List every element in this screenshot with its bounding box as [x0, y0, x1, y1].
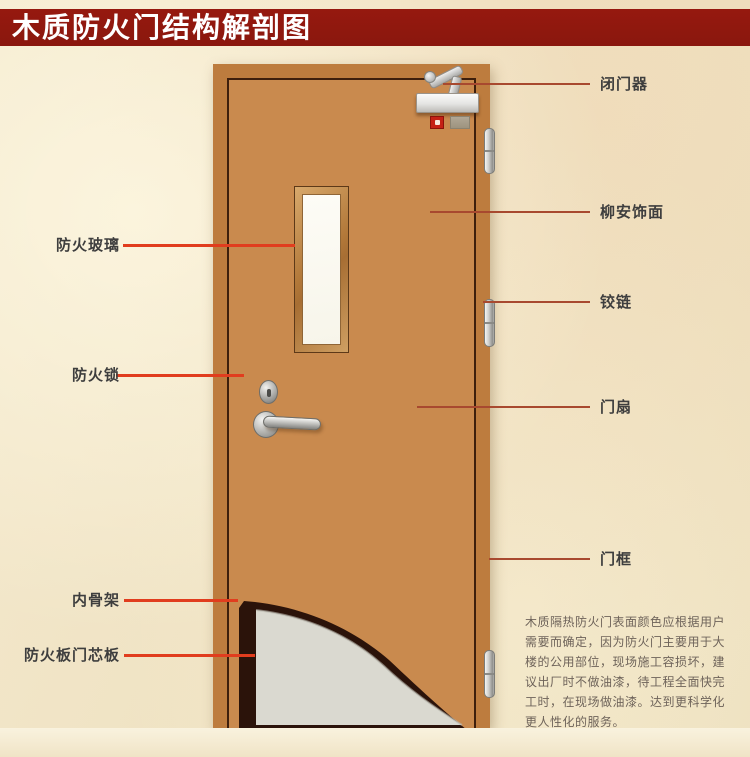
label-door-leaf: 门扇 [600, 398, 632, 416]
hinge-bottom [484, 650, 495, 698]
note-line: 需要而确定，因为防火门主要用于大 [525, 632, 721, 652]
leader-line [483, 301, 590, 303]
fire-rating-badge [430, 116, 444, 129]
door-closer-pivot [424, 71, 436, 83]
label-fire-lock: 防火锁 [0, 366, 120, 384]
floor-strip [0, 728, 750, 757]
note-line: 议出厂时不做油漆，待工程全面快完 [525, 672, 721, 692]
leader-line [417, 406, 590, 408]
note-line: 木质隔热防火门表面颜色应根据用户 [525, 612, 721, 632]
certification-patch [450, 116, 470, 129]
door-frame [213, 64, 490, 728]
vision-panel-frame [294, 186, 349, 353]
leader-line [123, 244, 295, 247]
leader-line [124, 599, 238, 602]
door-leaf [227, 78, 476, 728]
cutaway-section [238, 599, 484, 744]
note-line: 工时，在现场做油漆。达到更科学化 [525, 692, 721, 712]
leader-line [489, 558, 590, 560]
hinge-top [484, 128, 495, 174]
title-banner: 木质防火门结构解剖图 [0, 9, 750, 46]
fire-glass [302, 194, 341, 345]
page-title: 木质防火门结构解剖图 [0, 9, 750, 46]
note-line: 楼的公用部位，现场施工容损坏，建 [525, 652, 721, 672]
fire-lock-cylinder [259, 380, 278, 404]
label-lauan-veneer: 柳安饰面 [600, 203, 664, 221]
core-board [256, 610, 462, 725]
leader-line [124, 654, 255, 657]
label-fire-glass: 防火玻璃 [0, 236, 120, 254]
leader-line [116, 374, 244, 377]
diagram-canvas: 木质防火门结构解剖图 [0, 0, 750, 757]
description-note: 木质隔热防火门表面颜色应根据用户 需要而确定，因为防火门主要用于大 楼的公用部位… [525, 612, 721, 732]
label-core-board: 防火板门芯板 [0, 646, 120, 664]
note-line: 更人性化的服务。 [525, 712, 721, 732]
label-door-closer: 闭门器 [600, 75, 648, 93]
hinge-middle [484, 299, 495, 347]
leader-line [430, 211, 590, 213]
label-door-frame: 门框 [600, 550, 632, 568]
door-closer [416, 93, 479, 113]
label-inner-skeleton: 内骨架 [0, 591, 120, 609]
label-hinge: 铰链 [600, 293, 632, 311]
leader-line [443, 83, 590, 85]
